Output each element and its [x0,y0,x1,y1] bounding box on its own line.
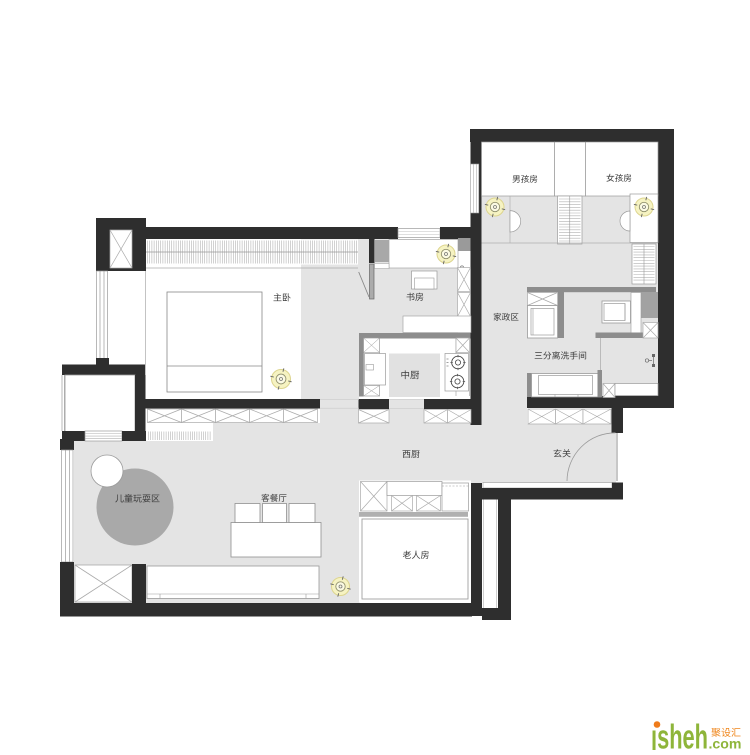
svg-text:.com: .com [709,737,742,751]
